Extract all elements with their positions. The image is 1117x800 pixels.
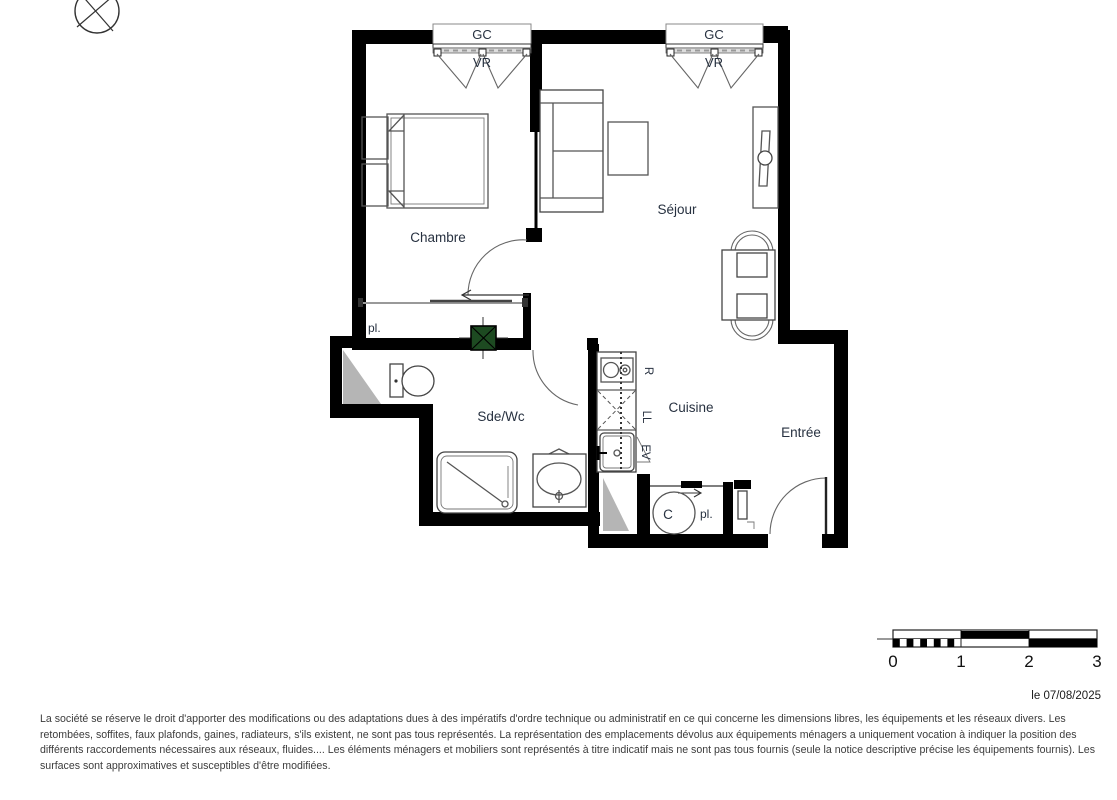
scale-label-1: 1 [956,652,965,671]
electrical-panel [734,480,754,529]
window-2: GC VR [666,24,763,88]
bathroom-door-arc [533,350,578,405]
duct-symbol [459,317,508,359]
tv-stand [753,107,778,208]
scale-label-2: 2 [1024,652,1033,671]
disclaimer-line: La société se réserve le droit d'apporte… [40,712,1095,728]
window-2-gc-label: GC [704,27,724,42]
room-label-cuisine: Cuisine [668,400,713,415]
dining-table [722,231,775,340]
bed [362,114,488,208]
water-heater-label: C [663,507,673,522]
room-label-sejour: Séjour [657,202,697,217]
room-label-placard-hall: pl. [368,321,381,335]
technical-shaft [603,478,629,531]
chambre-door-arc [468,240,527,295]
washbasin [533,449,586,507]
scale-bar: 0 1 2 3 [877,630,1102,671]
compass-icon [75,0,119,33]
disclaimer-line: différents raccordements nécessaires aux… [40,743,1095,759]
entrance-door [770,477,826,534]
room-label-sde-wc: Sde/Wc [477,409,525,424]
coffee-table [608,122,648,175]
scale-label-0: 0 [888,652,897,671]
appliance-label-washing-machine: LL [640,411,652,424]
appliance-label-refrigerator: R [642,367,654,375]
plan-date: le 07/08/2025 [1031,690,1101,702]
sofa [540,90,603,212]
window-1-vr-label: VR [473,55,491,70]
window-2-vr-label: VR [705,55,723,70]
window-1-gc-label: GC [472,27,492,42]
shower [437,452,517,513]
window-1: GC VR [433,24,531,88]
room-label-placard-entree: pl. [700,507,713,521]
disclaimer-line: retombées, soffites, faux plafonds, gain… [40,728,1095,744]
technical-shaft [343,350,381,404]
disclaimer-line: surfaces sont approximatives et suscepti… [40,759,1095,775]
sliding-door [358,290,529,307]
floor-plan: GC VR GC VR Chambre [0,0,1117,800]
appliance-label-sink: EV [639,444,651,460]
room-label-chambre: Chambre [410,230,466,245]
disclaimer-text: La société se réserve le droit d'apporte… [40,712,1095,774]
room-label-entree: Entrée [781,425,821,440]
toilet [390,364,434,397]
scale-label-3: 3 [1092,652,1101,671]
